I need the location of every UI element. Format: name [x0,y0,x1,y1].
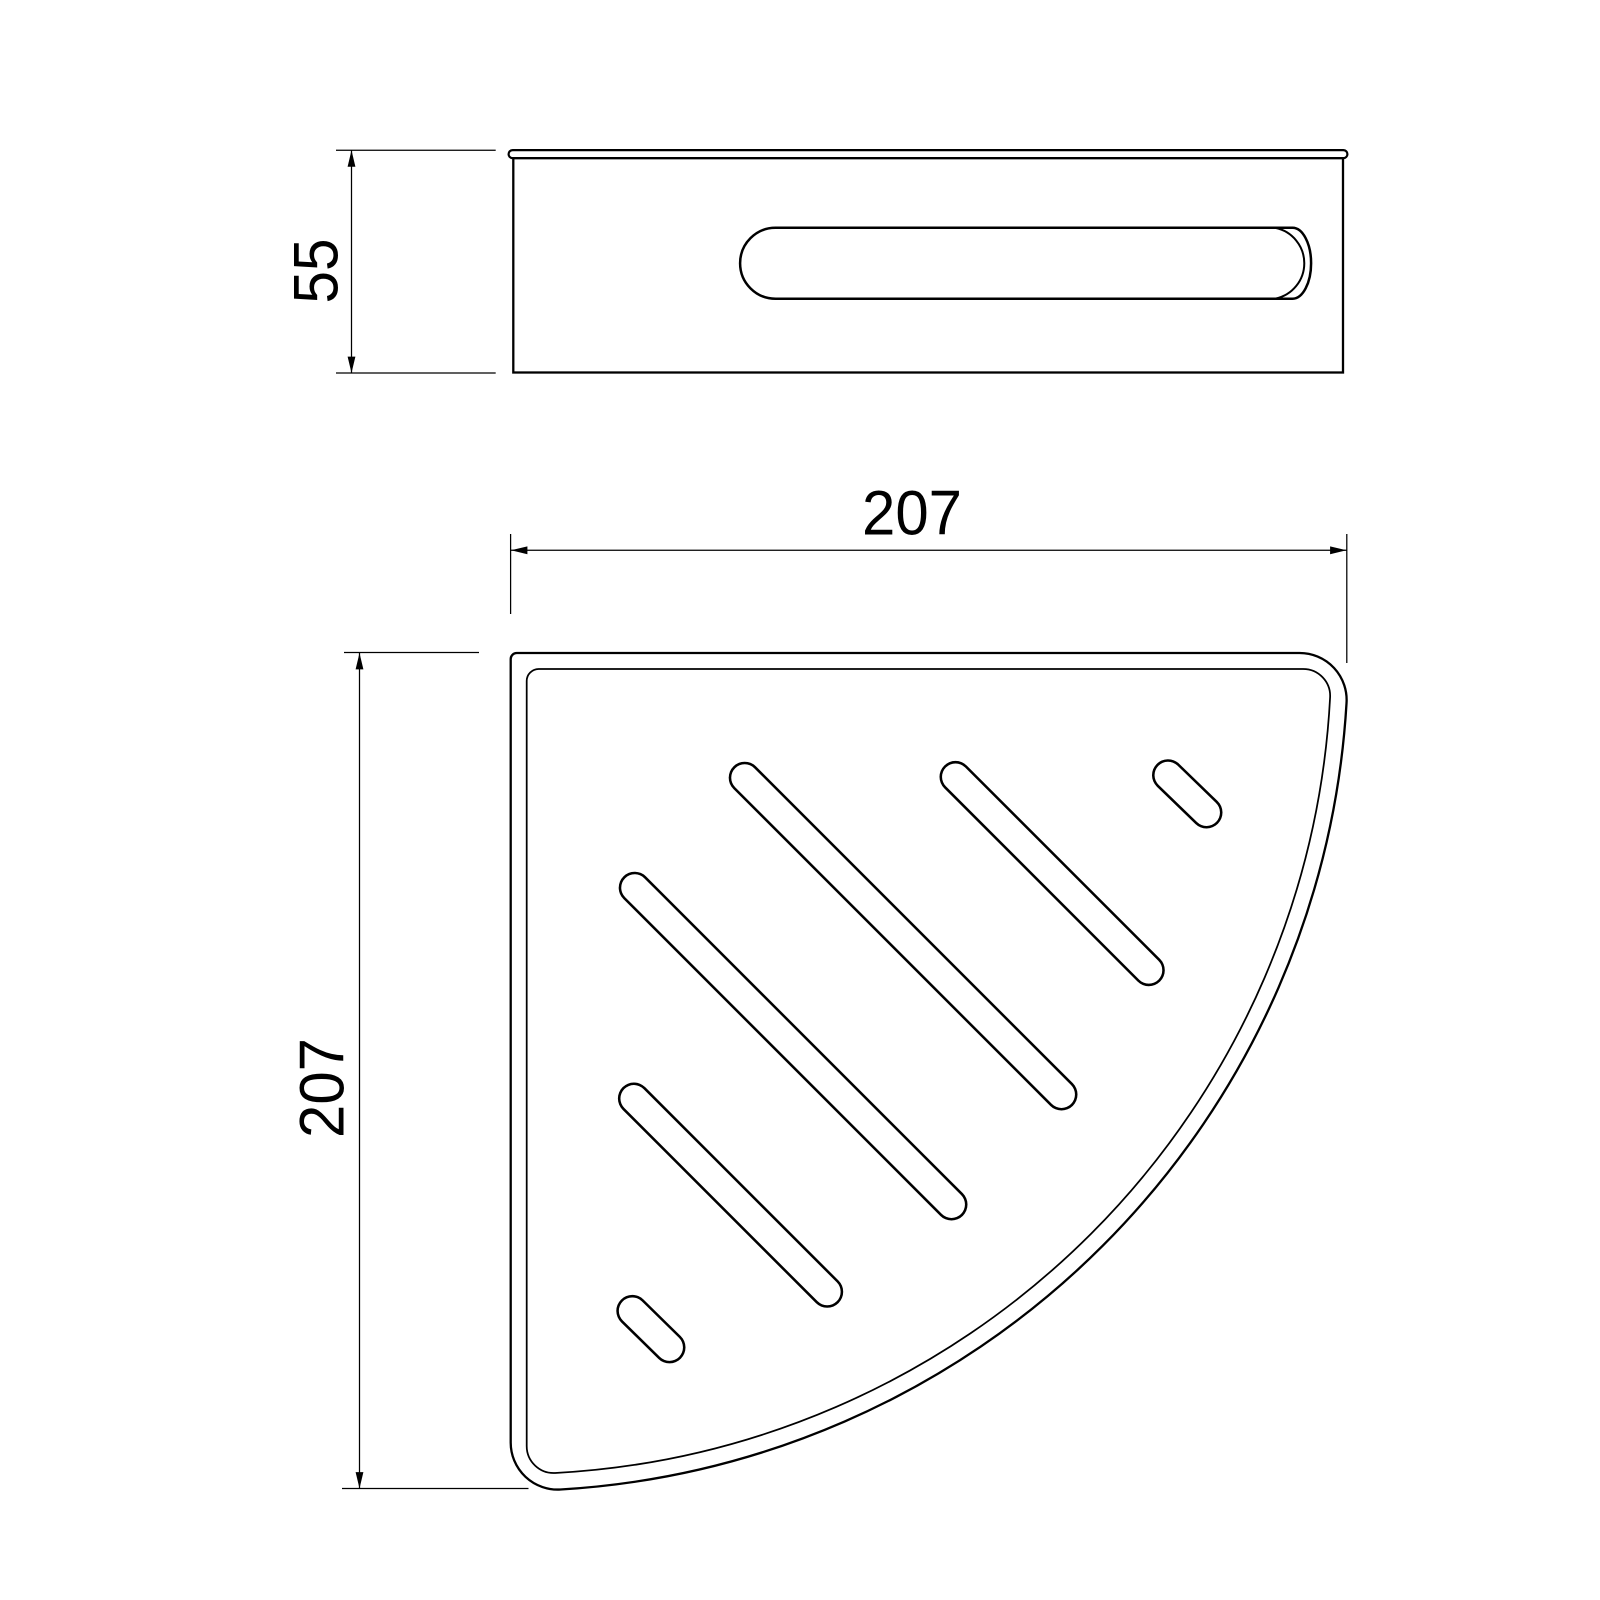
svg-text:207: 207 [288,1038,358,1138]
svg-text:207: 207 [862,479,962,549]
svg-text:55: 55 [282,239,352,304]
